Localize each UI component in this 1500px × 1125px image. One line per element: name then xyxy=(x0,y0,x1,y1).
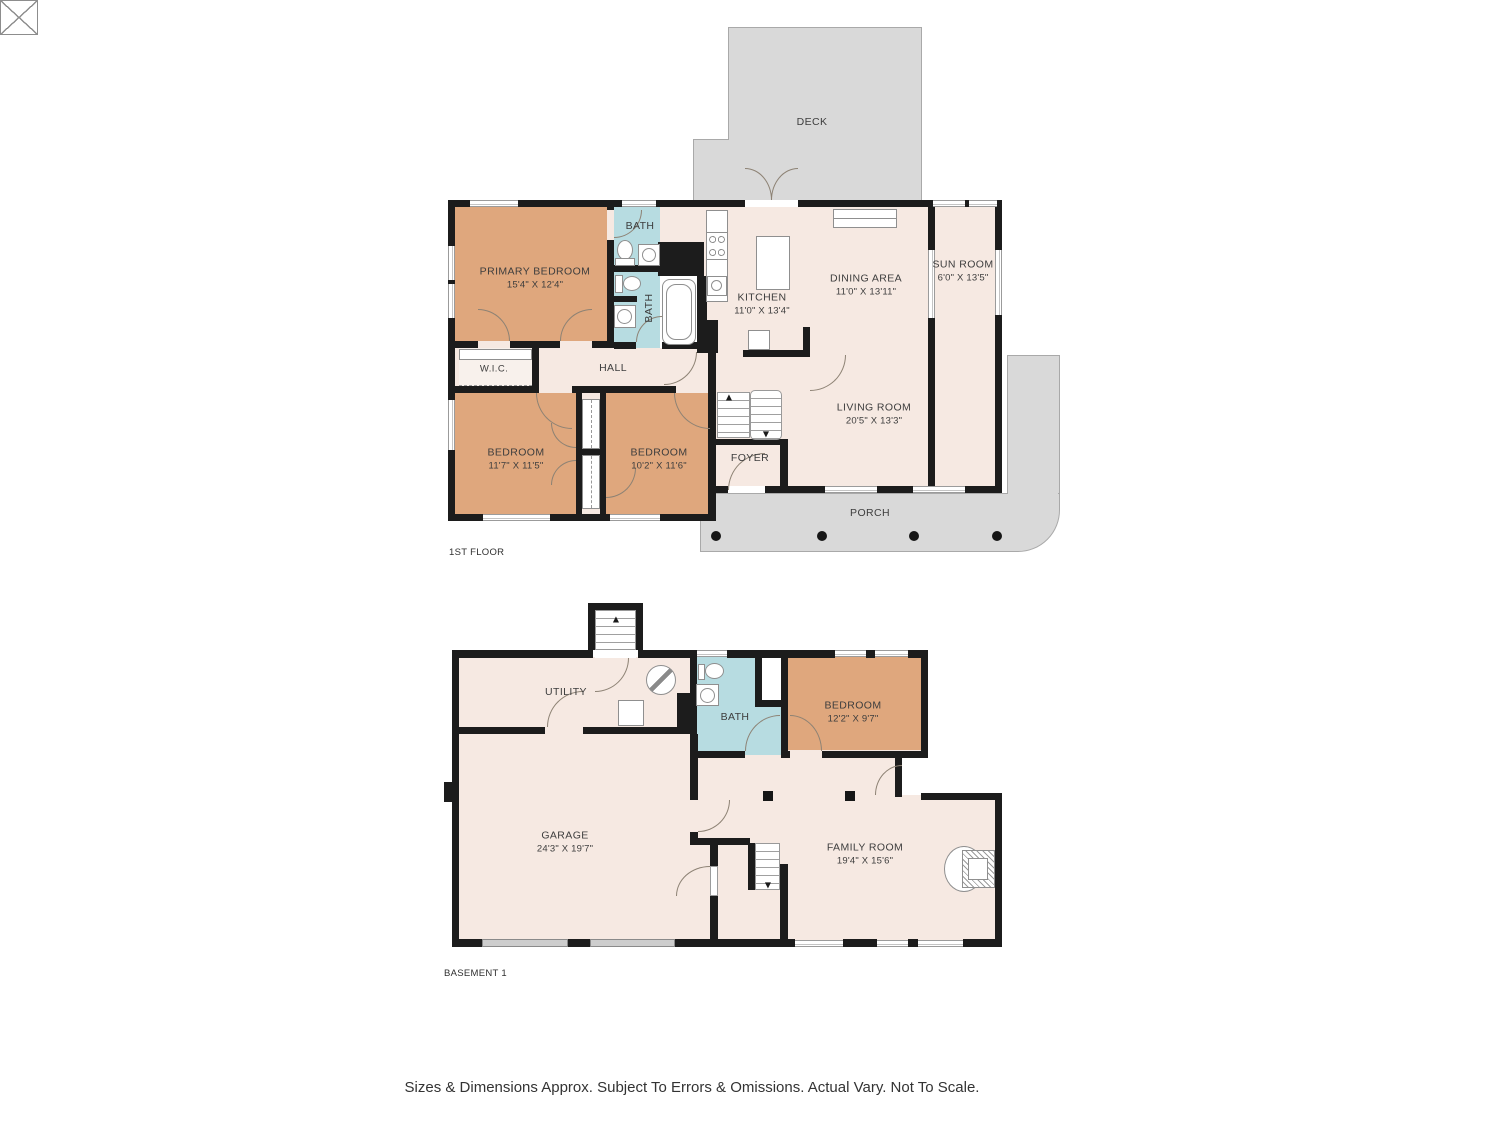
toilet-icon xyxy=(617,240,633,260)
window xyxy=(918,940,963,947)
window xyxy=(795,940,843,947)
wall xyxy=(921,650,928,757)
toilet-icon xyxy=(615,275,623,293)
wall xyxy=(638,650,695,658)
wall xyxy=(755,650,762,707)
closet-slider xyxy=(582,399,600,449)
wall xyxy=(928,200,935,250)
wall xyxy=(588,603,643,610)
wall xyxy=(588,603,595,650)
wall xyxy=(677,693,697,734)
window xyxy=(622,200,656,207)
chimney-block xyxy=(658,242,704,276)
toilet-icon xyxy=(698,664,705,680)
room-label-utility: UTILITY xyxy=(545,686,587,698)
wall xyxy=(995,200,1002,493)
wall xyxy=(710,896,718,939)
wall xyxy=(866,650,875,658)
stairs-up-arrow: ▲ xyxy=(613,615,619,624)
window xyxy=(835,650,866,657)
garage-door xyxy=(482,939,568,947)
stove-icon xyxy=(706,232,728,260)
wall xyxy=(452,650,459,947)
support-post xyxy=(845,791,855,801)
window xyxy=(995,250,1002,315)
room-label-bath-main: BATH xyxy=(643,293,655,322)
sink-icon xyxy=(700,688,715,703)
porch-post xyxy=(817,531,827,541)
wall xyxy=(444,782,452,802)
wall xyxy=(614,342,636,349)
window xyxy=(470,200,518,207)
wall xyxy=(572,386,676,393)
garage-door xyxy=(590,939,675,947)
sink-icon xyxy=(617,309,632,324)
deck-area xyxy=(729,137,921,142)
wall xyxy=(928,318,935,493)
window xyxy=(483,514,550,521)
wall xyxy=(452,939,482,947)
water-heater-icon xyxy=(646,665,676,695)
wall xyxy=(921,793,1002,800)
room-label-sun-room: SUN ROOM6'0" X 13'5" xyxy=(933,259,994,284)
window xyxy=(448,284,455,318)
porch-post xyxy=(711,531,721,541)
basement-closet xyxy=(902,757,921,795)
room-label-primary-bedroom: PRIMARY BEDROOM15'4" X 12'4" xyxy=(480,266,591,291)
wall xyxy=(707,320,718,353)
stairs-down-arrow: ▼ xyxy=(763,430,769,439)
door-leaf xyxy=(710,866,718,896)
wall xyxy=(690,751,745,758)
room-label-living-room: LIVING ROOM20'5" X 13'3" xyxy=(837,402,911,427)
wall xyxy=(690,734,698,800)
wall xyxy=(713,838,750,845)
porch-area xyxy=(1007,355,1060,497)
wall xyxy=(448,386,536,393)
window xyxy=(448,400,455,450)
wall xyxy=(607,200,614,210)
room-label-wic: W.I.C. xyxy=(480,364,508,375)
buffet xyxy=(834,218,896,219)
sink-icon xyxy=(642,248,656,262)
wall xyxy=(607,240,614,348)
closet-slider xyxy=(582,455,600,509)
window xyxy=(969,200,997,207)
window xyxy=(610,514,660,521)
window xyxy=(933,200,965,207)
wall xyxy=(755,700,788,707)
porch-area xyxy=(1008,493,1058,498)
porch-post xyxy=(992,531,1002,541)
toilet-icon xyxy=(623,276,641,291)
wall xyxy=(843,939,877,947)
room-label-foyer: FOYER xyxy=(731,452,769,464)
stair-landing xyxy=(595,650,636,658)
support-post xyxy=(763,791,773,801)
window xyxy=(448,246,455,280)
fireplace-icon xyxy=(968,858,988,880)
wall xyxy=(822,751,928,758)
wall xyxy=(452,650,593,658)
wall xyxy=(995,793,1002,947)
toilet-icon xyxy=(705,663,724,679)
room-label-bedroom-right: BEDROOM10'2" X 11'6" xyxy=(630,447,687,472)
wall xyxy=(780,864,788,939)
appliance-icon xyxy=(618,700,644,726)
room-label-bedroom-left: BEDROOM11'7" X 11'5" xyxy=(487,447,544,472)
wic-shelf xyxy=(459,349,532,360)
porch-post xyxy=(909,531,919,541)
floor1-tag: 1ST FLOOR xyxy=(449,547,504,558)
wall xyxy=(743,350,810,357)
wall xyxy=(614,265,660,272)
basement-tag: BASEMENT 1 xyxy=(444,968,507,979)
bathtub-icon xyxy=(666,284,692,340)
toilet-icon xyxy=(615,258,635,266)
window xyxy=(913,486,965,493)
wall xyxy=(748,843,755,890)
room-label-deck: DECK xyxy=(797,116,828,128)
room-label-porch: PORCH xyxy=(850,507,890,519)
room-label-basement-bedroom: BEDROOM12'2" X 9'7" xyxy=(824,700,881,725)
wall xyxy=(780,439,788,493)
wall xyxy=(613,296,637,302)
closet-icon xyxy=(0,0,38,35)
wall xyxy=(636,603,643,650)
window xyxy=(825,486,877,493)
window xyxy=(875,650,908,657)
kitchen-cabinet xyxy=(748,330,770,350)
kitchen-island xyxy=(756,236,790,290)
deck-door-opening xyxy=(745,200,798,207)
window xyxy=(877,940,908,947)
kitchen-sink-icon xyxy=(711,280,722,291)
wall xyxy=(708,342,716,521)
stairs-up-arrow: ▲ xyxy=(726,393,732,402)
wall xyxy=(592,341,614,348)
wall xyxy=(448,341,478,348)
wall xyxy=(710,845,718,866)
stairs-down-arrow: ▼ xyxy=(765,881,771,890)
wall xyxy=(908,939,918,947)
wall xyxy=(568,939,590,947)
room-label-garage: GARAGE24'3" X 19'7" xyxy=(537,830,593,855)
stairs-icon xyxy=(717,392,750,438)
wall xyxy=(510,341,560,348)
kitchen-opening xyxy=(718,348,743,356)
room-label-kitchen: KITCHEN11'0" X 13'4" xyxy=(734,292,790,317)
wall xyxy=(803,327,810,350)
room-label-hall: HALL xyxy=(599,362,627,374)
wall xyxy=(452,727,545,734)
room-label-basement-bath: BATH xyxy=(721,711,750,723)
room-label-family-room: FAMILY ROOM19'4" X 15'6" xyxy=(827,842,903,867)
wall xyxy=(448,200,1002,207)
wall xyxy=(710,386,716,393)
window xyxy=(695,650,727,657)
floorplan-canvas: ▲ ▼ DECK PRIMARY BEDROOM15'4" X 12'4" BA… xyxy=(0,0,1500,1125)
deck-area xyxy=(693,139,922,203)
porch-area xyxy=(700,493,1060,552)
room-label-bath-top: BATH xyxy=(626,220,655,232)
disclaimer-text: Sizes & Dimensions Approx. Subject To Er… xyxy=(405,1079,980,1096)
basement-closet xyxy=(762,657,781,700)
room-label-dining-area: DINING AREA11'0" X 13'11" xyxy=(830,273,902,298)
wall xyxy=(675,939,795,947)
